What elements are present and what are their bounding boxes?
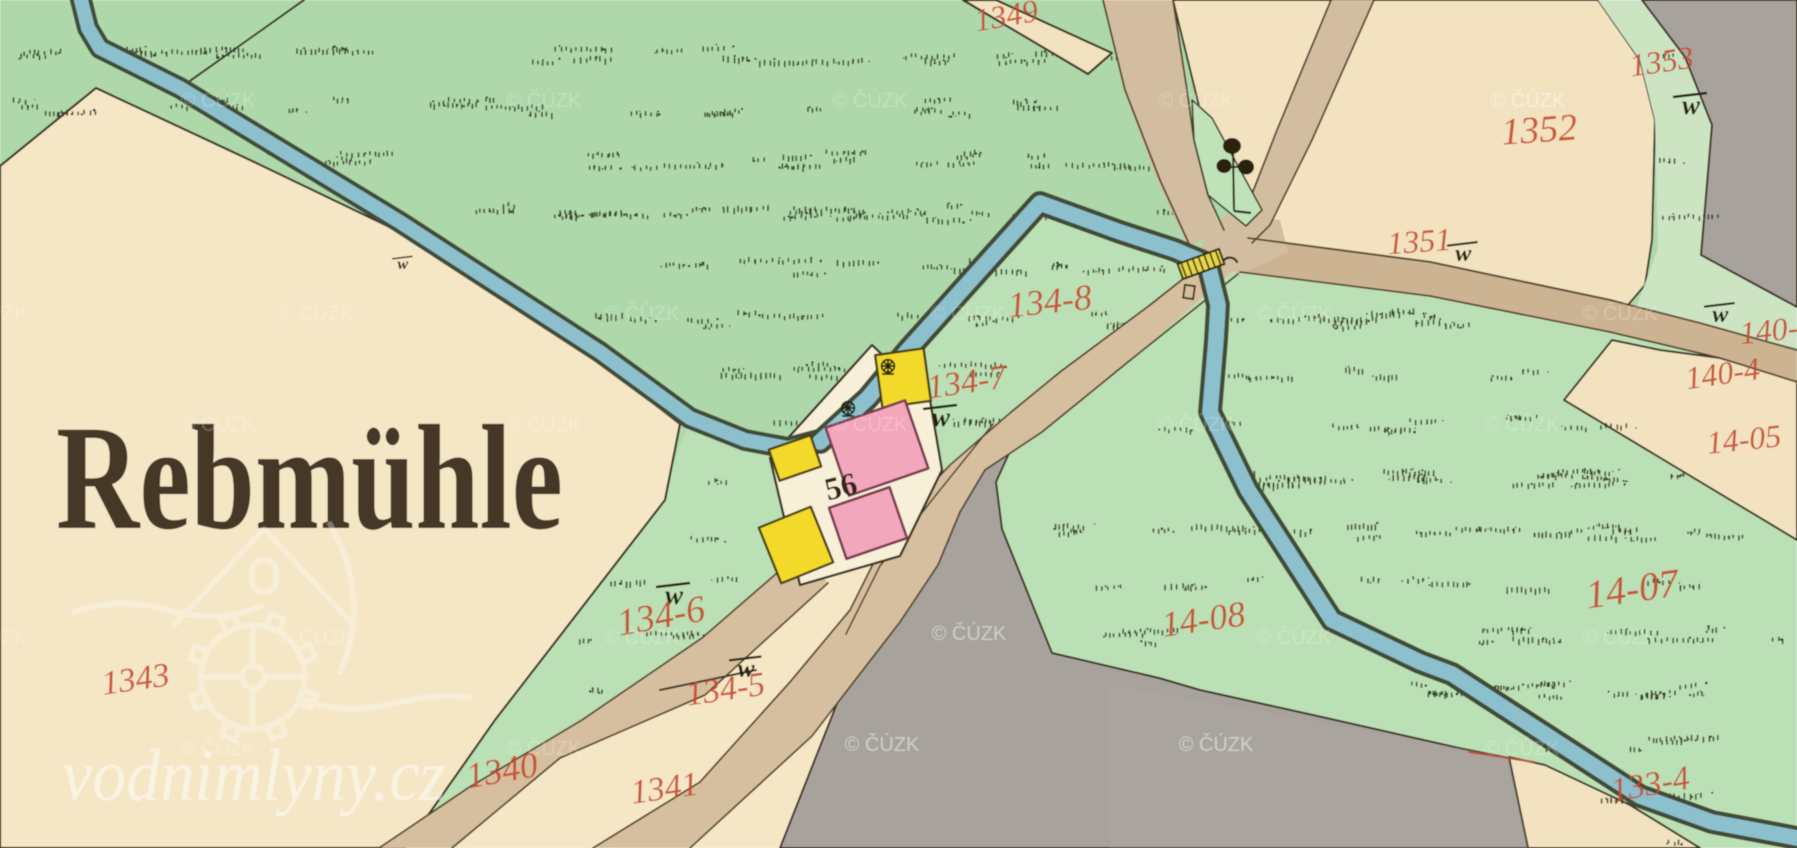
svg-text:© ČÚZK: © ČÚZK [845, 733, 920, 756]
svg-text:© ČÚZK: © ČÚZK [931, 302, 1006, 325]
svg-text:w: w [1712, 301, 1729, 328]
svg-text:© ČÚZK: © ČÚZK [1257, 626, 1332, 649]
svg-text:© ČÚZK: © ČÚZK [507, 413, 582, 436]
svg-text:1352: 1352 [1500, 106, 1579, 153]
svg-text:© ČÚZK: © ČÚZK [1179, 733, 1254, 756]
svg-text:© ČÚZK: © ČÚZK [1485, 737, 1560, 760]
svg-text:© ČÚZK: © ČÚZK [507, 737, 582, 760]
svg-text:© ČÚZK: © ČÚZK [1583, 626, 1658, 649]
svg-text:© ČÚZK: © ČÚZK [1485, 413, 1560, 436]
svg-text:© ČÚZK: © ČÚZK [605, 302, 680, 325]
svg-text:© ČÚZK: © ČÚZK [1583, 302, 1658, 325]
svg-text:© ČÚZK: © ČÚZK [0, 626, 28, 649]
svg-text:© ČÚZK: © ČÚZK [279, 626, 354, 649]
svg-text:© ČÚZK: © ČÚZK [833, 413, 908, 436]
svg-text:© ČÚZK: © ČÚZK [1159, 413, 1234, 436]
svg-text:© ČÚZK: © ČÚZK [605, 626, 680, 649]
svg-text:© ČÚZK: © ČÚZK [833, 89, 908, 112]
svg-text:© ČÚZK: © ČÚZK [1257, 302, 1332, 325]
svg-text:Rebmühle: Rebmühle [56, 395, 563, 561]
svg-text:w: w [397, 255, 408, 273]
svg-text:© ČÚZK: © ČÚZK [181, 89, 256, 112]
svg-text:w: w [932, 402, 951, 432]
svg-text:140-: 140- [1738, 309, 1797, 351]
svg-text:1351: 1351 [1386, 221, 1452, 261]
svg-text:w: w [1682, 90, 1701, 120]
svg-text:© ČÚZK: © ČÚZK [0, 302, 28, 325]
svg-text:© ČÚZK: © ČÚZK [279, 302, 354, 325]
svg-text:© ČÚZK: © ČÚZK [507, 89, 582, 112]
svg-text:© ČÚZK: © ČÚZK [932, 622, 1007, 645]
svg-text:© ČÚZK: © ČÚZK [181, 413, 256, 436]
svg-text:w: w [1455, 240, 1472, 267]
svg-text:© ČÚZK: © ČÚZK [1159, 89, 1234, 112]
svg-text:© ČÚZK: © ČÚZK [181, 737, 256, 760]
svg-text:© ČÚZK: © ČÚZK [1491, 89, 1566, 112]
